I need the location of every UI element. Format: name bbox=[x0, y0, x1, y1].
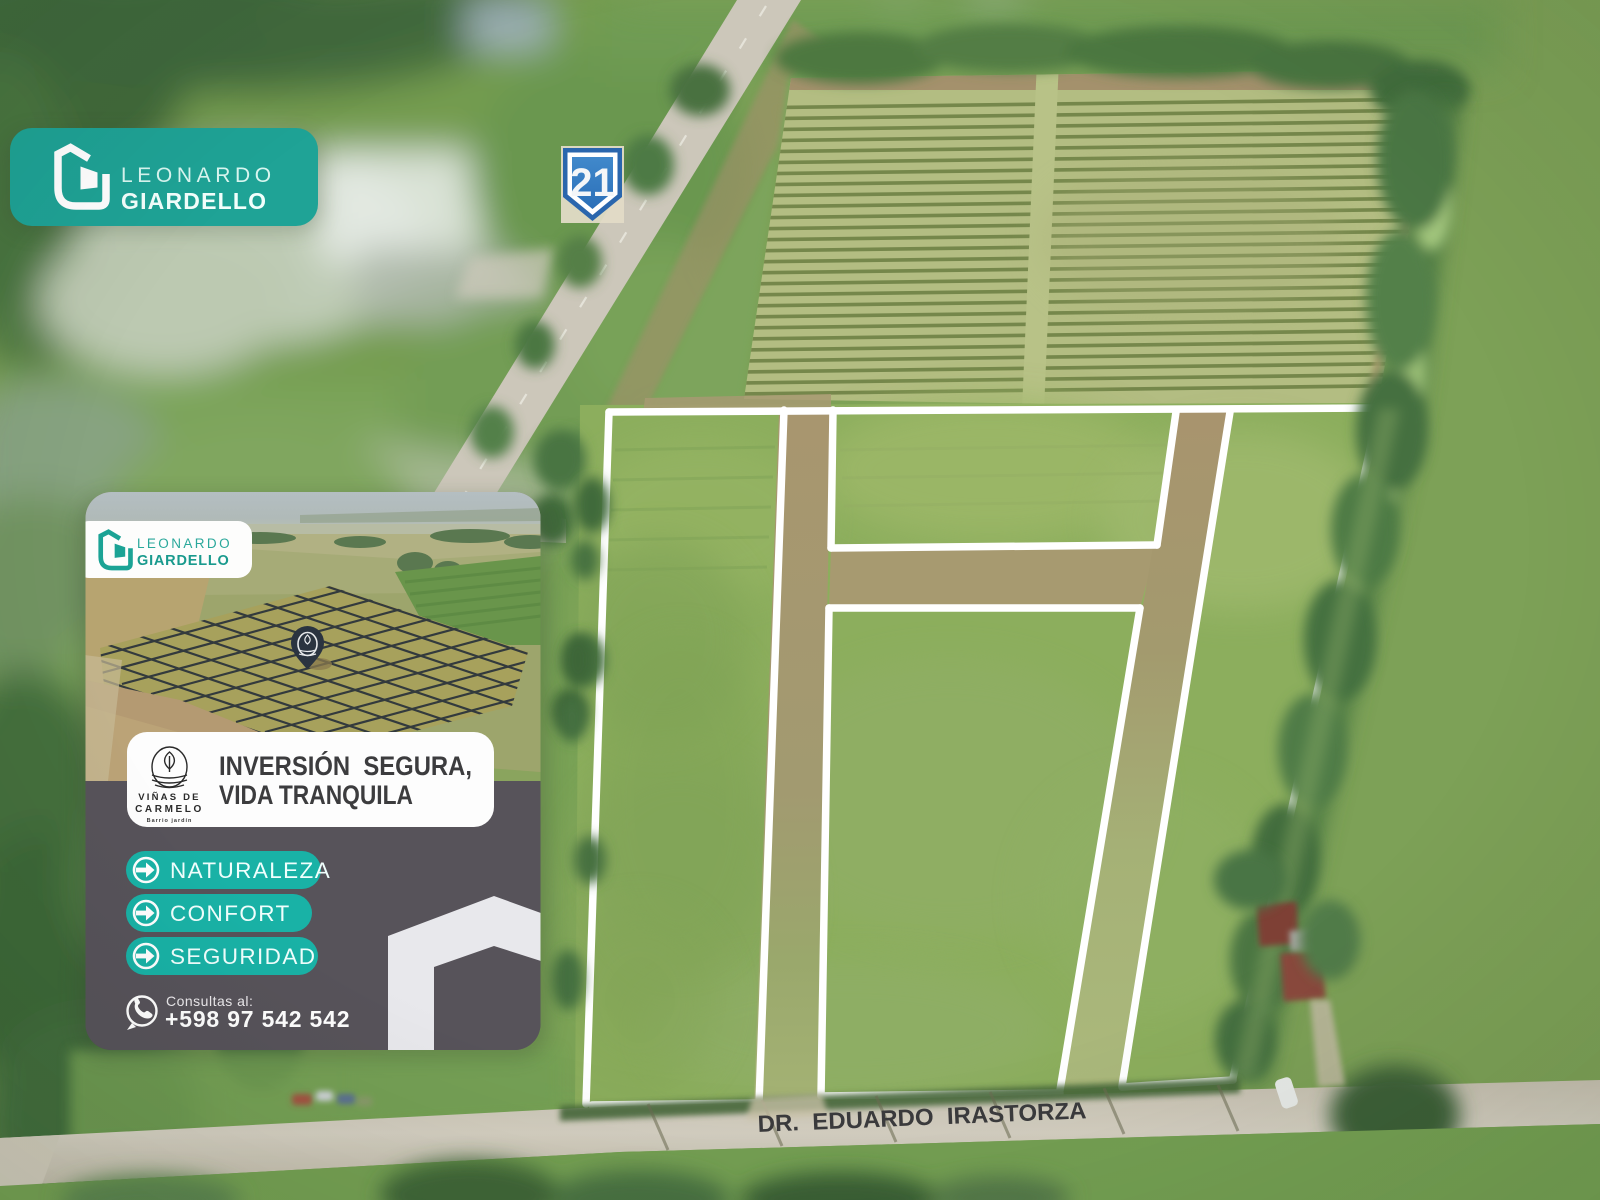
svg-text:VIDA TRANQUILA: VIDA TRANQUILA bbox=[219, 780, 413, 810]
svg-text:Barrio jardín: Barrio jardín bbox=[147, 818, 193, 824]
svg-text:GIARDELLO: GIARDELLO bbox=[137, 553, 230, 569]
svg-text:NATURALEZA: NATURALEZA bbox=[170, 858, 331, 883]
svg-text:+598 97 542 542: +598 97 542 542 bbox=[165, 1006, 350, 1032]
svg-text:21: 21 bbox=[570, 161, 615, 205]
svg-text:SEGURIDAD: SEGURIDAD bbox=[170, 944, 316, 969]
svg-text:LEONARDO: LEONARDO bbox=[137, 536, 232, 551]
svg-text:GIARDELLO: GIARDELLO bbox=[121, 188, 267, 214]
svg-text:VIÑAS DE: VIÑAS DE bbox=[138, 792, 200, 803]
svg-text:CARMELO: CARMELO bbox=[135, 804, 204, 815]
svg-text:INVERSIÓN SEGURA,: INVERSIÓN SEGURA, bbox=[219, 751, 472, 781]
svg-text:LEONARDO: LEONARDO bbox=[121, 164, 276, 187]
svg-text:CONFORT: CONFORT bbox=[170, 901, 291, 926]
